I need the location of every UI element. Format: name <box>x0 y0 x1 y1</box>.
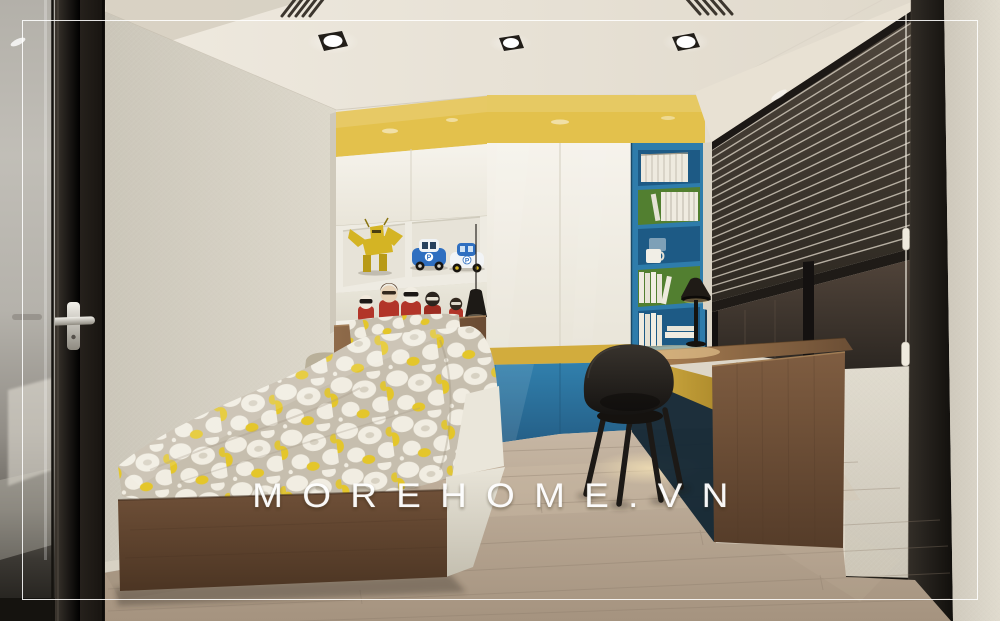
figurine <box>358 295 374 322</box>
door-frame <box>50 0 105 621</box>
downlight <box>307 30 359 54</box>
toy-car-badge: P <box>465 258 470 265</box>
shelving-unit: P P <box>330 96 487 334</box>
bed-base <box>118 490 447 591</box>
interior-render: P P <box>0 0 1000 621</box>
glass-door <box>0 0 55 621</box>
downlight <box>488 33 532 53</box>
downlight <box>662 31 710 53</box>
desk-side-panel <box>712 352 845 548</box>
window-jamb <box>703 142 712 311</box>
mug-and-vase <box>646 238 666 263</box>
books <box>639 272 672 304</box>
outer-wall <box>944 0 1000 621</box>
binder-stack <box>641 153 688 182</box>
toy-car-badge: P <box>427 255 432 262</box>
door-handle-reflection <box>12 314 42 320</box>
